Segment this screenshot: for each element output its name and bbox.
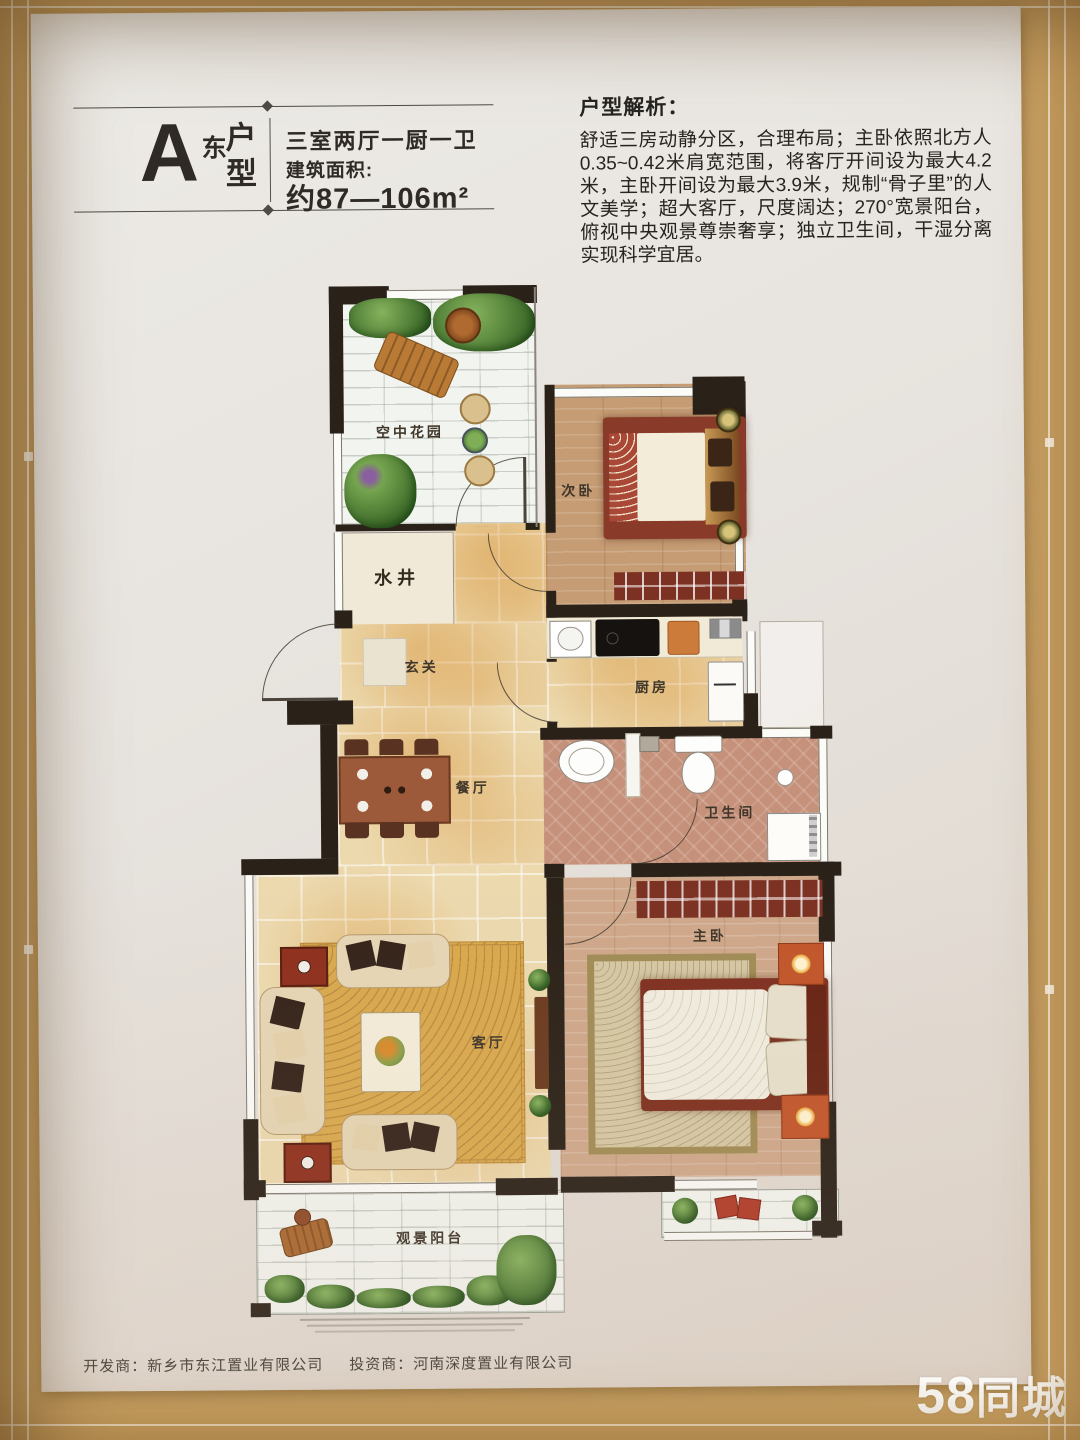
balcony-plant xyxy=(265,1275,305,1303)
site-watermark: 58同城 xyxy=(916,1362,1068,1426)
rule-ornament-icon xyxy=(262,204,273,215)
counter-appliance-icon xyxy=(709,618,741,638)
room-label-well: 水井 xyxy=(374,564,420,590)
wall xyxy=(251,1303,271,1317)
console-plant xyxy=(528,969,550,991)
bed-pillow-icon xyxy=(710,481,734,511)
bed-runner-second xyxy=(609,433,638,521)
console-plant xyxy=(529,1095,551,1117)
frame-pinstripe-right-inner xyxy=(1048,0,1050,1440)
window xyxy=(762,728,812,738)
title-divider xyxy=(269,118,271,202)
towel-ring-icon xyxy=(777,769,794,786)
balcony-railing-line xyxy=(307,1323,523,1327)
wall xyxy=(329,286,344,433)
bedpost-knob-icon xyxy=(717,519,742,544)
balcony-door-window xyxy=(675,1179,757,1190)
dining-chair xyxy=(345,822,369,838)
toilet-bowl-icon xyxy=(681,752,715,794)
floor-plan: 空中花园 水井 次卧 玄关 厨房 餐厅 卫生间 主卧 客厅 观景阳台 xyxy=(237,282,865,1332)
room-label-dining: 餐厅 xyxy=(456,777,490,797)
wall xyxy=(241,859,338,876)
wall xyxy=(631,862,841,878)
wall xyxy=(561,1176,675,1193)
dining-chair xyxy=(379,739,403,755)
end-table xyxy=(283,1143,331,1183)
window xyxy=(545,387,695,398)
sofa-pillow-icon xyxy=(382,1122,412,1152)
unit-letter: A xyxy=(139,113,199,195)
foyer-mat xyxy=(363,638,407,686)
balcony-railing-line xyxy=(300,1317,530,1321)
balcony-side-table-icon xyxy=(294,1209,311,1226)
sofa-pillow-icon xyxy=(351,1122,381,1152)
balcony-plant xyxy=(496,1235,557,1305)
frame-pinstripe-left-outer xyxy=(11,0,13,1440)
bathroom-sink-inner-icon xyxy=(568,747,604,775)
rule-ornament-icon xyxy=(262,100,273,111)
wall xyxy=(244,1180,266,1197)
frame-pinstripe-left-inner xyxy=(27,0,29,1440)
entry-door-arc xyxy=(261,624,339,702)
watermark-name: 同城 xyxy=(976,1374,1068,1423)
wall xyxy=(545,385,556,533)
coffee-table-flowers-icon xyxy=(375,1036,405,1066)
nightstand xyxy=(778,943,824,985)
sofa-pillow-icon xyxy=(376,940,406,970)
fridge-arrow-icon xyxy=(714,683,736,685)
bed-duvet-master xyxy=(643,989,770,1100)
frame-motif xyxy=(24,452,33,461)
dining-chair xyxy=(414,739,438,755)
frame-motif xyxy=(1045,438,1054,447)
bed-mattress-second xyxy=(637,433,706,522)
wall xyxy=(544,864,564,878)
dining-table xyxy=(338,756,451,825)
toilet-tank-icon xyxy=(674,735,722,752)
room-label-sky-garden: 空中花园 xyxy=(376,422,444,443)
title-rule-top xyxy=(73,104,493,108)
exterior-platform xyxy=(759,621,824,728)
wall xyxy=(320,725,338,859)
analysis-block: 户型解析： 舒适三房动静分区，合理布局；主卧依照北方人0.35~0.42米肩宽范… xyxy=(579,88,992,267)
sofa-pillow-icon xyxy=(346,940,377,971)
bed-headboard-master xyxy=(806,983,827,1105)
area-value: 约87—106m² xyxy=(286,174,469,217)
second-bedroom-closet xyxy=(614,571,746,600)
unit-orientation: 东 xyxy=(202,128,227,164)
wall xyxy=(810,726,832,739)
wall xyxy=(287,700,353,725)
room-label-bathroom: 卫生间 xyxy=(704,802,755,822)
balcony-pillow-icon xyxy=(737,1197,762,1221)
sofa-pillow-icon xyxy=(406,940,436,970)
sofa-pillow-icon xyxy=(271,1061,304,1093)
window xyxy=(244,875,255,1119)
window xyxy=(334,532,344,610)
dining-chair xyxy=(415,822,439,838)
room-label-living: 客厅 xyxy=(472,1032,506,1052)
floor-drain-icon xyxy=(639,736,659,752)
washer-controls-icon xyxy=(809,815,817,857)
room-label-foyer: 玄关 xyxy=(405,657,439,677)
frame-pinstripe-right-outer xyxy=(1064,0,1066,1440)
watermark-number: 58 xyxy=(916,1367,976,1425)
poster-sheet: A 东 户型 三室两厅一厨一卫 建筑面积: 约87—106m² 户型解析： 舒适… xyxy=(31,6,1032,1392)
investor-info: 投资商：河南深度置业有限公司 xyxy=(349,1355,573,1374)
title-block: A 东 户型 三室两厅一厨一卫 建筑面积: 约87—106m² xyxy=(73,104,494,217)
frame-motif xyxy=(24,945,33,954)
analysis-heading: 户型解析： xyxy=(579,88,991,121)
room-label-kitchen: 厨房 xyxy=(635,677,669,697)
bedpost-knob-icon xyxy=(716,407,741,432)
analysis-body: 舒适三房动静分区，合理布局；主卧依照北方人0.35~0.42米肩宽范围，将客厅开… xyxy=(580,126,993,267)
window xyxy=(746,631,755,693)
stove-icon xyxy=(595,619,659,657)
sofa-pillow-icon xyxy=(272,1028,307,1061)
garden-pot-icon xyxy=(462,427,488,453)
wall xyxy=(812,1221,842,1236)
window xyxy=(333,433,343,524)
end-table xyxy=(280,947,328,987)
fridge-icon xyxy=(708,661,744,721)
balcony-plant xyxy=(357,1288,411,1308)
window xyxy=(664,1231,812,1241)
garden-plant xyxy=(344,454,417,529)
room-label-master-bedroom: 主卧 xyxy=(693,925,727,945)
garden-table-icon xyxy=(445,307,481,343)
frame-motif xyxy=(1045,985,1054,994)
balcony-plant xyxy=(413,1286,465,1308)
garden-stool-icon xyxy=(464,455,495,486)
master-wardrobe xyxy=(636,880,822,918)
unit-type-label: 户型 xyxy=(225,120,260,192)
garden-door-leaf xyxy=(523,457,526,523)
balcony-plant xyxy=(672,1198,698,1224)
bed-pillow-icon xyxy=(708,438,732,466)
balcony-railing-line xyxy=(315,1329,515,1333)
footer-info: 开发商：新乡市东江置业有限公司投资商：河南深度置业有限公司 xyxy=(83,1351,599,1376)
nightstand xyxy=(781,1095,829,1139)
garden-stool-icon xyxy=(460,393,491,424)
wall xyxy=(496,1178,558,1195)
developer-info: 开发商：新乡市东江置业有限公司 xyxy=(83,1357,323,1376)
dining-chair xyxy=(344,739,368,755)
room-label-second-bedroom: 次卧 xyxy=(561,480,595,500)
sofa-pillow-icon xyxy=(409,1122,440,1153)
unit-spec: 三室两厅一厨一卫 xyxy=(285,122,477,156)
tv-console xyxy=(534,997,549,1089)
balcony-window xyxy=(266,1182,496,1194)
room-label-balcony: 观景阳台 xyxy=(396,1228,464,1249)
balcony-plant xyxy=(792,1195,818,1221)
dining-chair xyxy=(380,822,404,838)
kitchen-sink-basin-icon xyxy=(557,627,583,651)
cutting-board-icon xyxy=(667,621,699,655)
balcony-plant xyxy=(307,1284,355,1308)
